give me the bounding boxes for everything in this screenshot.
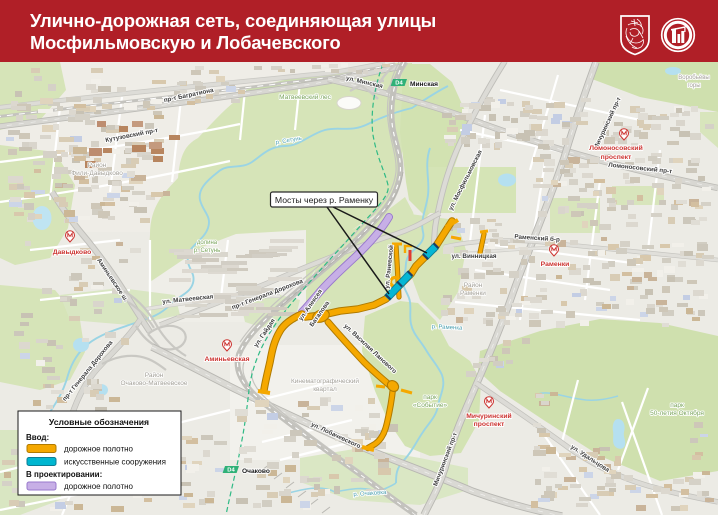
svg-text:Ломоносовский: Ломоносовский	[589, 144, 643, 152]
svg-text:дорожное полотно: дорожное полотно	[64, 482, 134, 491]
svg-text:Очаково: Очаково	[242, 468, 270, 475]
svg-text:квартал: квартал	[313, 386, 337, 393]
svg-text:Раменки: Раменки	[460, 290, 486, 297]
svg-text:искусственные сооружения: искусственные сооружения	[64, 458, 166, 467]
svg-text:Раменки: Раменки	[541, 261, 570, 268]
svg-text:проспект: проспект	[601, 154, 632, 161]
svg-text:ул. Винницкая: ул. Винницкая	[451, 253, 496, 260]
svg-text:долина: долина	[197, 240, 218, 246]
svg-text:Фили-Давыдково: Фили-Давыдково	[71, 170, 123, 177]
svg-text:Район: Район	[464, 281, 483, 289]
svg-text:Кинематографический: Кинематографический	[291, 377, 359, 385]
svg-text:парк: парк	[423, 394, 437, 401]
svg-text:Минская: Минская	[410, 81, 438, 88]
svg-text:р. Сетунь: р. Сетунь	[194, 248, 220, 254]
svg-text:парк: парк	[670, 402, 684, 409]
svg-text:Воробьёвы: Воробьёвы	[678, 75, 709, 81]
svg-text:D4: D4	[227, 468, 235, 474]
svg-text:В проектировании:: В проектировании:	[26, 470, 102, 479]
svg-text:Давыдково: Давыдково	[53, 249, 92, 256]
svg-text:Условные обозначения: Условные обозначения	[49, 417, 149, 427]
svg-text:проспект: проспект	[474, 421, 505, 428]
svg-text:дорожное полотно: дорожное полотно	[64, 445, 134, 454]
svg-text:50-летия Октября: 50-летия Октября	[650, 409, 704, 417]
svg-text:Мосты через р. Раменку: Мосты через р. Раменку	[275, 195, 374, 205]
svg-text:Район: Район	[145, 371, 164, 379]
svg-text:Район: Район	[88, 161, 107, 169]
svg-text:«Событие»: «Событие»	[413, 401, 448, 409]
svg-text:D4: D4	[395, 81, 403, 87]
svg-text:Очаково-Матвеевское: Очаково-Матвеевское	[120, 380, 187, 387]
svg-text:Аминьевская: Аминьевская	[204, 356, 249, 363]
svg-text:Мичуринский: Мичуринский	[466, 412, 511, 420]
svg-text:Ввод:: Ввод:	[26, 433, 49, 442]
svg-text:горы: горы	[687, 83, 700, 89]
svg-text:Матвеевский лес: Матвеевский лес	[279, 93, 331, 101]
